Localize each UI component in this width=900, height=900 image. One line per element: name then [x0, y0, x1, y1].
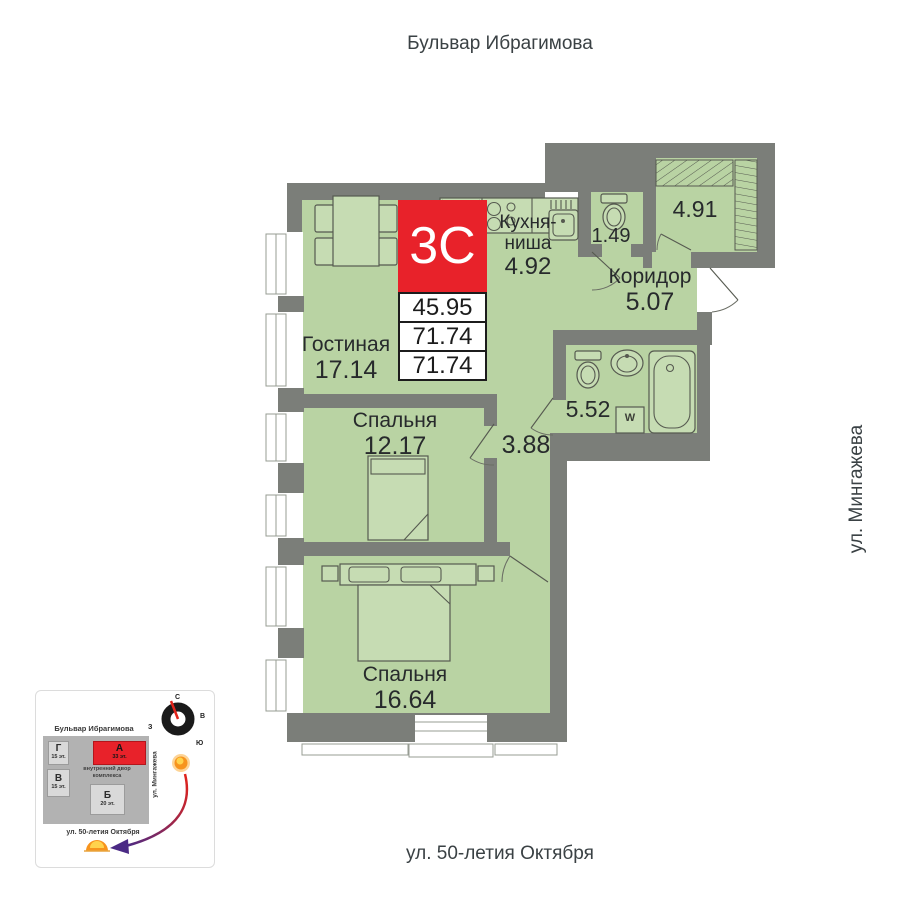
dining-table — [315, 196, 397, 266]
compass-s: Ю — [196, 740, 203, 747]
compass-icon — [166, 701, 190, 731]
area-value-total2: 71.74 — [398, 350, 487, 381]
location-minimap: Бульвар Ибрагимова Г 15 эт. В 15 эт. А 3… — [35, 690, 215, 868]
street-label-right: ул. Мингажева — [846, 419, 868, 559]
bathtub-icon — [649, 351, 695, 433]
sun-icon — [172, 754, 190, 772]
compass-w: З — [148, 724, 153, 731]
bed-single-icon — [368, 456, 428, 540]
street-label-top: Бульвар Ибрагимова — [300, 33, 700, 55]
area-value-total: 71.74 — [398, 321, 487, 352]
sunset-icon — [84, 840, 110, 851]
sun-path-arrow — [110, 774, 187, 854]
compass-e: В — [200, 713, 205, 720]
minimap-graphics: С В З Ю — [36, 691, 214, 867]
sink-icon-bathroom — [611, 350, 643, 376]
plan-type-badge: 3С — [398, 200, 487, 292]
floorplan-page: Бульвар Ибрагимова ул. Мингажева ул. 50-… — [0, 0, 900, 900]
street-label-bottom: ул. 50-летия Октября — [300, 843, 700, 865]
entrance-door — [710, 268, 738, 312]
area-value-living: 45.95 — [398, 292, 487, 323]
toilet-icon-wc — [601, 194, 627, 230]
toilet-icon-bathroom — [575, 351, 601, 388]
compass-n: С — [175, 694, 180, 701]
washer-label: W — [616, 412, 644, 424]
